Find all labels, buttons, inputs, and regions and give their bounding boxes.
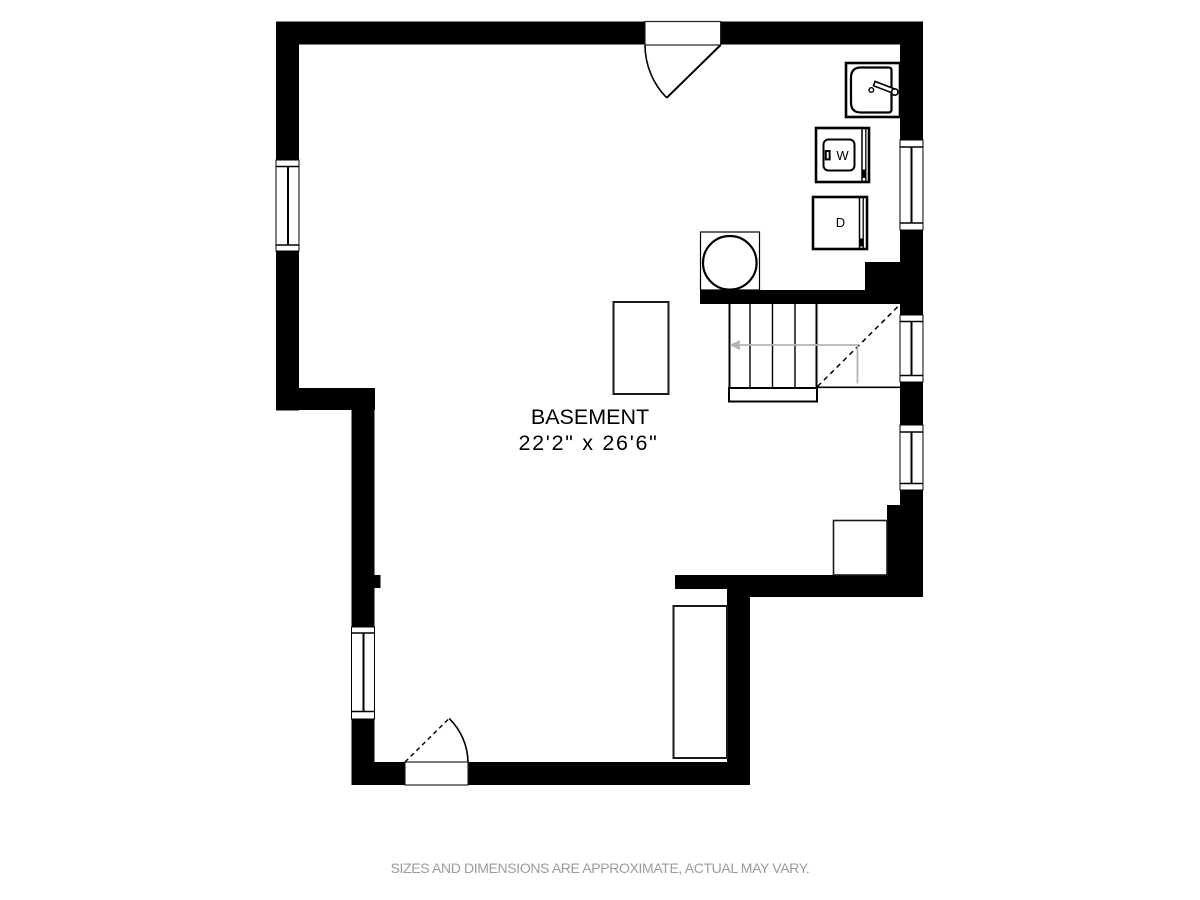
svg-text:W: W <box>836 148 849 163</box>
svg-text:22'2" x 26'6": 22'2" x 26'6" <box>518 431 658 455</box>
svg-text:SIZES AND DIMENSIONS ARE APPRO: SIZES AND DIMENSIONS ARE APPROXIMATE, AC… <box>391 860 810 876</box>
svg-text:D: D <box>836 215 845 230</box>
svg-text:BASEMENT: BASEMENT <box>531 405 649 429</box>
